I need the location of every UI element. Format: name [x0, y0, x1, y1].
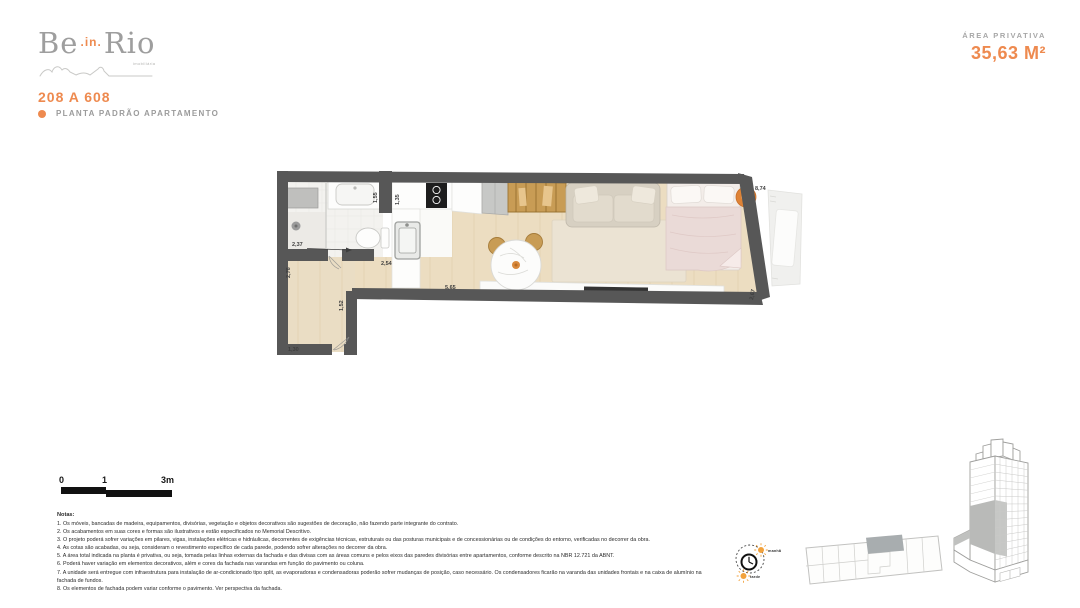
brand-logo: Be.in.Rio imobiliária [38, 26, 228, 96]
dimension-label: 2,37 [292, 242, 303, 248]
sun-path-diagram: manhã tarde [726, 532, 792, 588]
note-item: 5. A área total indicada na planta é pri… [57, 552, 702, 560]
sun-icon [754, 543, 768, 557]
logo-rio: Rio [104, 26, 156, 60]
scale-tick-3m: 3m [161, 475, 174, 485]
sun-morning-label: manhã [768, 549, 782, 553]
brand-logo-text: Be.in.Rio [38, 26, 228, 66]
note-item: 7. A unidade será entregue com infraestr… [57, 569, 702, 585]
sun-afternoon-label: tarde [750, 575, 760, 579]
scale-tick-1: 1 [102, 475, 107, 485]
wardrobe [508, 181, 566, 212]
building-illustration [950, 432, 1050, 587]
note-item: 1. Os móveis, bancadas de madeira, equip… [57, 520, 702, 528]
notes-block: Notas: 1. Os móveis, bancadas de madeira… [57, 512, 702, 593]
note-item: 4. As cotas são acabadas, ou seja, consi… [57, 544, 702, 552]
notes-heading: Notas: [57, 512, 702, 518]
dimension-label: 1,55 [373, 192, 379, 203]
dimension-label: 8,74 [755, 186, 767, 192]
key-plan-unit-highlight [866, 535, 904, 554]
toilet [356, 228, 380, 248]
key-plan [798, 528, 948, 590]
sofa [566, 183, 660, 227]
bed [666, 182, 741, 271]
note-item: 2. Os acabamentos em suas cores e formas… [57, 528, 702, 536]
facade-element [768, 190, 802, 286]
area-value: 35,63 M² [962, 43, 1046, 64]
dimension-label: 1,52 [339, 300, 345, 311]
scale-segment [61, 487, 106, 494]
note-item: 6. Poderá haver variação em elementos de… [57, 560, 702, 568]
floor-plan: 2,37 2,76 2,54 1,55 1,35 5,65 1,52 1,30 … [270, 165, 810, 370]
pillow [704, 185, 735, 204]
scale-bar: 0 1 3m [58, 475, 183, 500]
area-label: ÁREA PRIVATIVA [962, 31, 1046, 40]
scale-tick-0: 0 [59, 475, 64, 485]
private-area-block: ÁREA PRIVATIVA 35,63 M² [962, 31, 1046, 64]
bullet-icon [38, 110, 46, 118]
shower-shelf [286, 188, 318, 208]
logo-in: .in. [80, 35, 101, 49]
plan-type-label: PLANTA PADRÃO APARTAMENTO [56, 109, 219, 118]
unit-range: 208 A 608 [38, 89, 111, 105]
scale-segment [106, 490, 172, 497]
dimension-label: 2,54 [381, 261, 393, 267]
note-item: 8. Os elementos de fachada podem variar … [57, 585, 702, 593]
pillow [671, 185, 702, 204]
mountain-skyline-icon [38, 62, 156, 80]
logo-be: Be [38, 26, 78, 60]
dimension-label: 1,30 [288, 347, 299, 353]
note-item: 3. O projeto poderá sofrer variações em … [57, 536, 702, 544]
dimension-label: 2,76 [286, 267, 292, 278]
dimension-label: 5,65 [445, 285, 456, 291]
brochure-page: Be.in.Rio imobiliária 208 A 608 PLANTA P… [0, 0, 1080, 608]
plan-type-row: PLANTA PADRÃO APARTAMENTO [38, 109, 219, 118]
dimension-label: 1,35 [395, 194, 401, 205]
